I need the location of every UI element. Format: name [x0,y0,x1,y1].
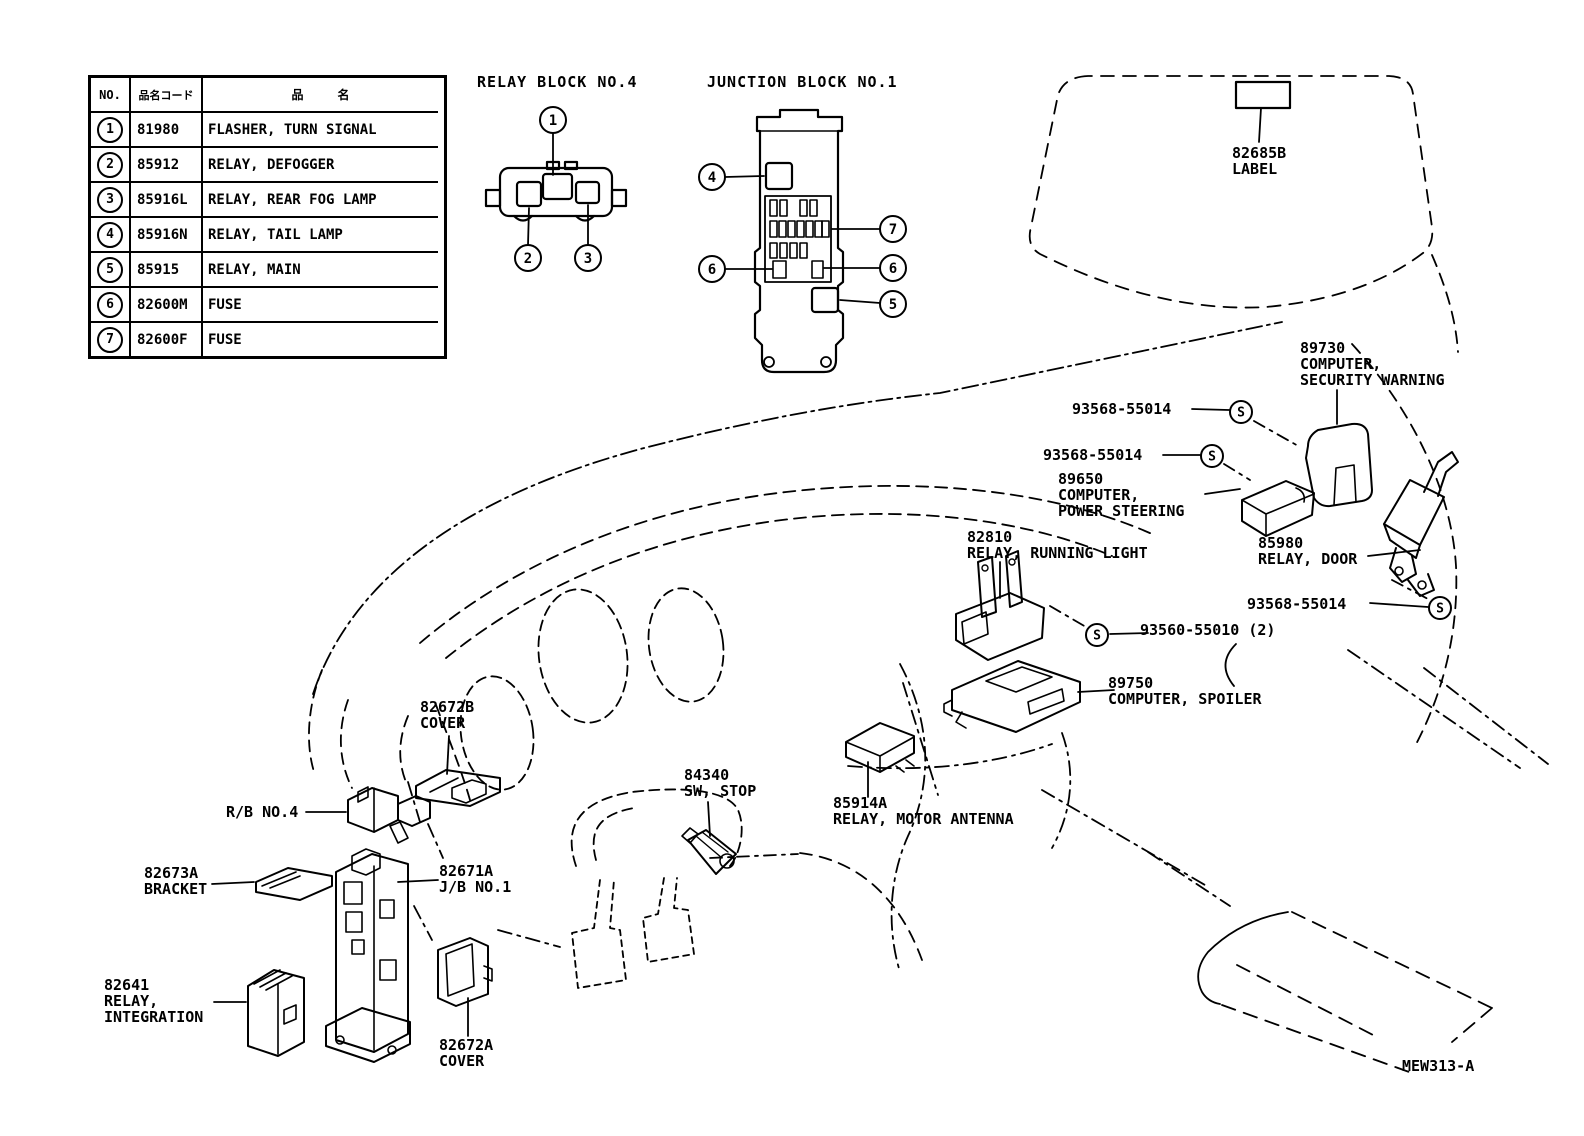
part-name: RELAY, DEFOGGER [203,148,438,183]
part-label-82671a-jb-no1: 82671A J/B NO.1 [439,863,511,895]
jb-no1-assembly [326,849,410,1062]
s-marker-glyph: S [1436,602,1444,617]
relay-block-no4-drawing [486,133,626,245]
callout-number: 2 [524,251,532,267]
table-row: 6 82600M FUSE [91,288,444,323]
fuse-row-2 [770,221,829,237]
callout-5: 5 [880,291,906,317]
gauge-ellipse-left [453,672,540,795]
s-marker-glyph: S [1093,629,1101,644]
leader-lines [212,390,1428,1036]
row-number-badge: 6 [97,292,123,318]
part-name: FLASHER, TURN SIGNAL [203,113,438,148]
part-code: 85912 [131,148,203,183]
row-number-badge: 4 [97,222,123,248]
part-label-82685b-label: 82685B LABEL [1232,145,1286,177]
table-row: 5 85915 RELAY, MAIN [91,253,444,288]
part-name: RELAY, REAR FOG LAMP [203,183,438,218]
callout-4: 4 [699,164,725,190]
bracket-82673a-part [256,868,332,900]
part-label-89750-computer-spoiler: 89750 COMPUTER, SPOILER [1108,675,1262,707]
part-label-screw-93568-55014-2: 93568-55014 [1043,447,1142,463]
relay-integration-box [248,970,304,1056]
screw-marker-icon: S [1429,597,1451,619]
part-label-82672a-cover: 82672A COVER [439,1037,493,1069]
part-code: 82600M [131,288,203,323]
table-row: 7 82600F FUSE [91,323,444,356]
windshield-label-box [1236,82,1290,108]
part-code: 85916N [131,218,203,253]
relay-door-part [1384,452,1458,596]
callout-7: 7 [880,216,906,242]
table-row: 4 85916N RELAY, TAIL LAMP [91,218,444,253]
figure-code: MEW313-A [1402,1058,1474,1074]
screw-marker-icon: S [1201,445,1223,467]
fuse-row-1 [770,200,817,216]
callout-number: 6 [708,262,716,278]
part-name: FUSE [203,323,438,356]
part-name: RELAY, TAIL LAMP [203,218,438,253]
row-number-badge: 3 [97,187,123,213]
part-code: 82600F [131,323,203,356]
part-name: RELAY, MAIN [203,253,438,288]
table-row: 3 85916L RELAY, REAR FOG LAMP [91,183,444,218]
callout-number: 1 [549,113,557,129]
computer-power-steering-box [1242,481,1314,536]
callout-6-left: 6 [699,256,725,282]
junction-block-title: JUNCTION BLOCK NO.1 [707,74,898,90]
part-label-85914a-motor-antenna: 85914A RELAY, MOTOR ANTENNA [833,795,1014,827]
screw-marker-icon: S [1230,401,1252,423]
part-label-89650-power-steering: 89650 COMPUTER, POWER STEERING [1058,471,1184,520]
callout-1: 1 [540,107,566,133]
windshield-outline [1030,76,1433,308]
table-row: 2 85912 RELAY, DEFOGGER [91,148,444,183]
part-drawings [248,424,1458,1062]
row-number-badge: 1 [97,117,123,143]
callout-number: 5 [889,297,897,313]
part-label-82641-integration: 82641 RELAY, INTEGRATION [104,977,203,1026]
s-marker-glyph: S [1208,450,1216,465]
callout-6-right: 6 [880,255,906,281]
callout-number: 3 [584,251,592,267]
part-code: 81980 [131,113,203,148]
part-label-screw-93568-55014-1: 93568-55014 [1072,401,1171,417]
callout-circles: 1 2 3 4 7 6 6 5 [515,107,906,317]
relay-motor-antenna-box [846,723,914,772]
legend-col-code: 品名コード [131,78,203,113]
legend-col-no: NO. [91,78,131,113]
part-label-rb-no4: R/B NO.4 [226,804,298,820]
cover-82672a-part [438,938,492,1006]
part-label-screw-93568-55014-3: 93568-55014 [1247,596,1346,612]
screw-marker-icon: S [1086,624,1108,646]
gauge-ellipse-middle [530,584,636,729]
callout-number: 4 [708,170,716,186]
parts-location-diagram: S S S S 1 2 3 4 7 6 6 5 NO. 品名コード 品名 1 8… [0,0,1584,1136]
row-number-badge: 2 [97,152,123,178]
cover-82672b-part [416,770,500,806]
s-marker-glyph: S [1237,406,1245,421]
gauge-ellipse-right [641,583,730,706]
fuse-row-3 [770,243,807,258]
part-label-82672b-cover: 82672B COVER [420,699,474,731]
junction-block-no1-drawing [725,110,880,372]
part-label-85980-relay-door: 85980 RELAY, DOOR [1258,535,1357,567]
part-label-89730-computer-security: 89730 COMPUTER, SECURITY WARNING [1300,340,1445,389]
part-code: 85915 [131,253,203,288]
relay-block-title: RELAY BLOCK NO.4 [477,74,638,90]
legend-col-name: 品名 [203,78,438,113]
row-number-badge: 5 [97,257,123,283]
computer-security-warning-box [1306,424,1372,506]
callout-3: 3 [575,245,601,271]
part-code: 85916L [131,183,203,218]
callout-2: 2 [515,245,541,271]
callout-number: 6 [889,261,897,277]
legend-header-row: NO. 品名コード 品名 [91,78,444,113]
part-name: FUSE [203,288,438,323]
computer-spoiler-box [944,661,1080,732]
row-number-badge: 7 [97,327,123,353]
part-label-82673a-bracket: 82673A BRACKET [144,865,207,897]
stop-switch-part [682,828,736,874]
part-label-84340-sw-stop: 84340 SW, STOP [684,767,756,799]
legend-table: NO. 品名コード 品名 1 81980 FLASHER, TURN SIGNA… [88,75,447,359]
part-label-screw-93560-55010: 93560-55010 (2) [1140,622,1275,638]
part-label-82810-running-light: 82810 RELAY, RUNNING LIGHT [967,529,1148,561]
table-row: 1 81980 FLASHER, TURN SIGNAL [91,113,444,148]
callout-number: 7 [889,222,897,238]
